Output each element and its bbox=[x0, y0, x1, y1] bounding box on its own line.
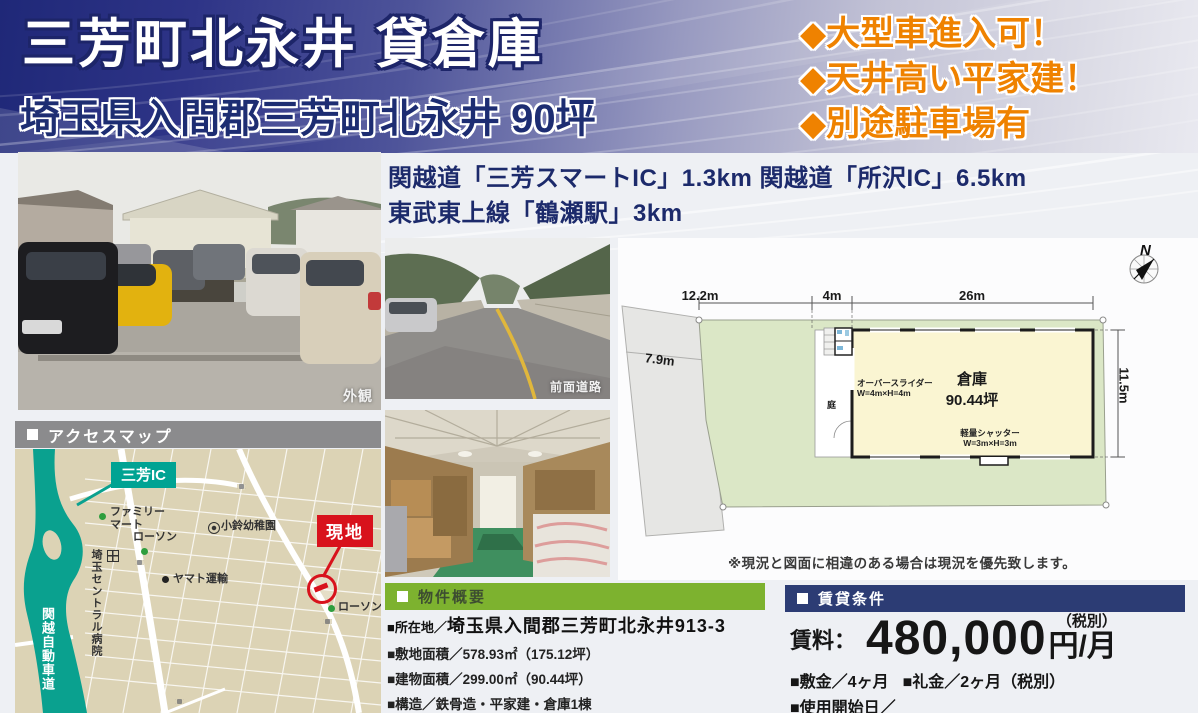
map-label-familymart: ファミリー マート bbox=[110, 506, 165, 532]
dim-4m: 4m bbox=[812, 288, 852, 303]
miyoshi-ic-badge: 三芳IC bbox=[111, 462, 176, 488]
rent-deposit-keymoney: ■敷金／4ヶ月■礼金／2ヶ月（税別） bbox=[790, 668, 1065, 692]
site-marker-icon bbox=[307, 574, 337, 604]
square-bullet-icon bbox=[27, 429, 38, 440]
rent-start-date: ■使用開始日／ bbox=[790, 694, 896, 713]
store-dot-icon bbox=[99, 513, 106, 520]
kindergarten-icon bbox=[208, 522, 220, 534]
map-label-lawson2: ローソン bbox=[338, 601, 381, 614]
crossing-icon bbox=[135, 560, 144, 565]
store-dot-icon bbox=[328, 605, 335, 612]
garden-label: 庭 bbox=[827, 398, 836, 411]
hospital-icon bbox=[107, 550, 119, 562]
rent-price: 賃料： 480,000 （税別） 円/月 bbox=[790, 610, 1117, 663]
access-info: 関越道「三芳スマートIC」1.3km 関越道「所沢IC」6.5km 東武東上線「… bbox=[388, 161, 1027, 231]
road-photo-caption: 前面道路 bbox=[550, 378, 602, 395]
square-bullet-icon bbox=[797, 593, 808, 604]
exterior-photo-graphic bbox=[18, 152, 381, 410]
site-badge: 現地 bbox=[317, 515, 373, 547]
yamato-dot-icon bbox=[162, 576, 169, 583]
header-band: 三芳町北永井 貸倉庫 埼玉県入間郡三芳町北永井 90坪 ◆大型車進入可！ ◆天井… bbox=[0, 0, 1198, 153]
map-label-kindergarten: 小鈴幼稚園 bbox=[221, 520, 276, 533]
map-label-expressway: 関越自動車道 bbox=[38, 607, 57, 691]
rent-label: 賃料： bbox=[790, 623, 856, 663]
rent-amount: 480,000 bbox=[866, 615, 1047, 663]
rent-unit: 円/月 bbox=[1049, 631, 1117, 663]
page-subtitle: 埼玉県入間郡三芳町北永井 90坪 bbox=[20, 86, 596, 144]
map-label-yamato: ヤマト運輸 bbox=[173, 573, 228, 586]
rent-header-bar: 賃貸条件 bbox=[785, 585, 1185, 612]
crossing-icon bbox=[175, 699, 184, 704]
property-header-bar: 物件概要 bbox=[385, 583, 765, 610]
square-bullet-icon bbox=[397, 591, 408, 602]
road-photo-graphic bbox=[385, 238, 610, 399]
rent-deposit: ■敷金／4ヶ月 bbox=[790, 674, 889, 691]
road-photo: 前面道路 bbox=[385, 238, 610, 399]
property-item: ■構造／鉄骨造・平家建・倉庫1棟 bbox=[387, 693, 726, 713]
property-item: ■敷地面積／578.93㎡（175.12坪） bbox=[387, 643, 726, 663]
access-map-header-bar: アクセスマップ bbox=[15, 421, 381, 448]
exterior-photo-caption: 外観 bbox=[343, 386, 373, 406]
access-map: 三芳IC 現地 ファミリー マート ローソン 埼玉セントラル病院 ヤマト運輸 小… bbox=[15, 449, 381, 713]
property-item: ■建物面積／299.00㎡（90.44坪） bbox=[387, 668, 726, 688]
access-map-header-label: アクセスマップ bbox=[48, 423, 173, 447]
rent-header-label: 賃貸条件 bbox=[818, 588, 886, 609]
compass-north-label: N bbox=[1140, 242, 1151, 259]
map-label-hospital: 埼玉セントラル病院 bbox=[89, 549, 102, 649]
crossing-icon bbox=[323, 619, 332, 624]
dim-11-5m: 11.5m bbox=[1117, 364, 1132, 408]
access-line-1: 関越道「三芳スマートIC」1.3km 関越道「所沢IC」6.5km bbox=[388, 161, 1027, 196]
property-location: ■所在地／埼玉県入間郡三芳町北永井913-3 bbox=[387, 612, 726, 638]
feature-item: ◆別途駐車場有 bbox=[800, 102, 1098, 147]
exterior-photo: 外観 bbox=[18, 152, 381, 410]
dim-12-2m: 12.2m bbox=[665, 288, 735, 303]
access-line-2: 東武東上線「鶴瀬駅」3km bbox=[388, 196, 1027, 231]
rent-key-money: ■礼金／2ヶ月（税別） bbox=[903, 674, 1066, 691]
interior-photo bbox=[385, 410, 610, 577]
feature-item: ◆大型車進入可！ bbox=[800, 12, 1098, 57]
plan-disclaimer-note: ※現況と図面に相違のある場合は現況を優先致します。 bbox=[728, 552, 1076, 572]
dim-26m: 26m bbox=[932, 288, 1012, 303]
overslider-label: オーバースライダー W=4m×H=4m bbox=[857, 378, 933, 398]
interior-photo-graphic bbox=[385, 410, 610, 577]
compass-icon bbox=[1130, 255, 1158, 283]
store-dot-icon bbox=[141, 548, 148, 555]
rent-tax-note: （税別） bbox=[1057, 610, 1117, 631]
property-details: ■所在地／埼玉県入間郡三芳町北永井913-3 ■敷地面積／578.93㎡（175… bbox=[387, 612, 726, 713]
map-label-lawson1: ローソン bbox=[133, 531, 177, 544]
property-header-label: 物件概要 bbox=[418, 586, 486, 607]
feature-item: ◆天井高い平家建！ bbox=[800, 57, 1098, 102]
shutter-label: 軽量シャッター W=3m×H=3m bbox=[952, 428, 1028, 448]
rent-unit-block: （税別） 円/月 bbox=[1049, 610, 1117, 663]
crossing-icon bbox=[237, 484, 246, 489]
page-title: 三芳町北永井 貸倉庫 bbox=[22, 2, 544, 78]
feature-list: ◆大型車進入可！ ◆天井高い平家建！ ◆別途駐車場有 bbox=[800, 12, 1098, 147]
flyer-page: 三芳町北永井 貸倉庫 埼玉県入間郡三芳町北永井 90坪 ◆大型車進入可！ ◆天井… bbox=[0, 0, 1198, 713]
annex-shape bbox=[824, 328, 852, 355]
